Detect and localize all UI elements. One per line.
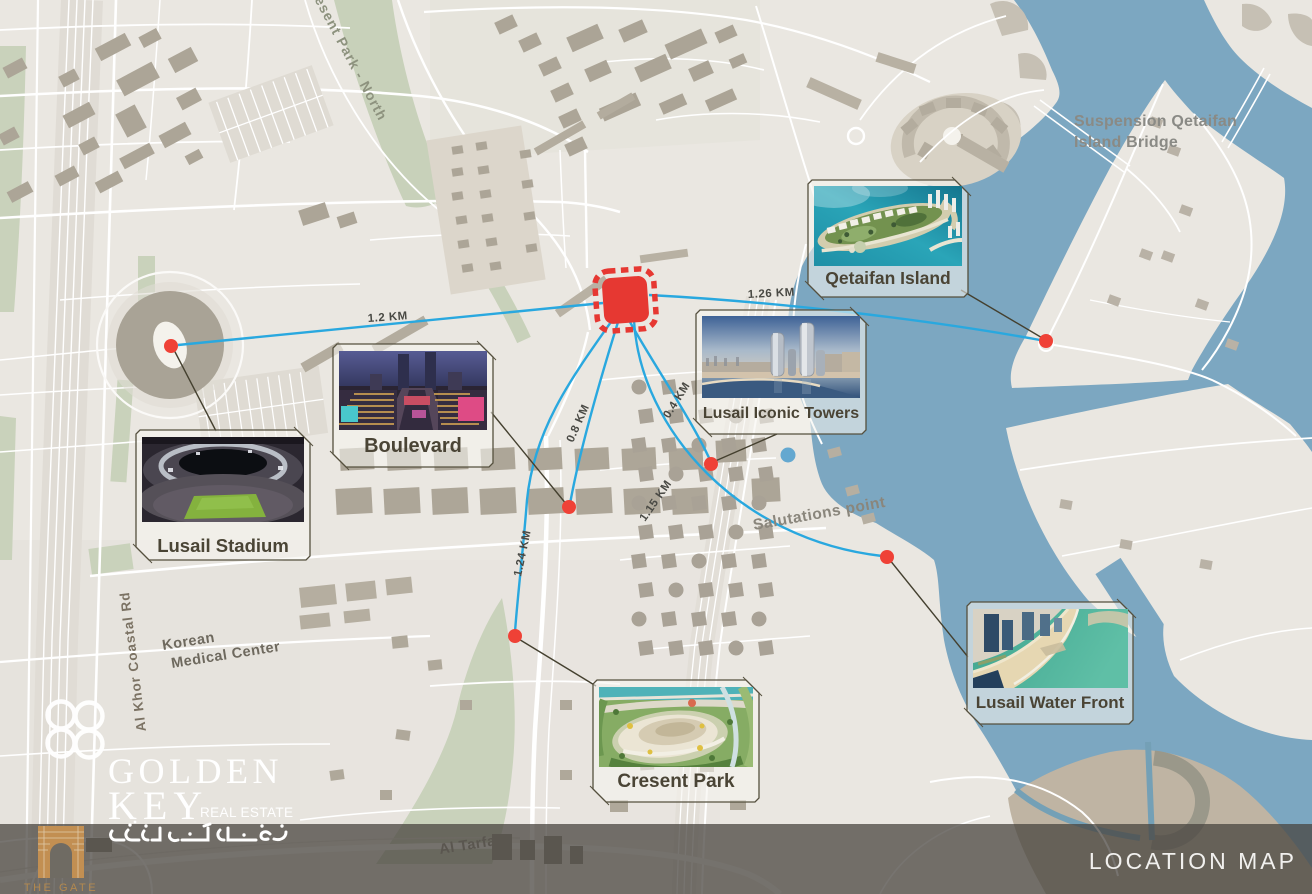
svg-text:1.26 KM: 1.26 KM xyxy=(748,287,796,301)
svg-text:Suspension Qetaifan: Suspension Qetaifan xyxy=(1074,113,1237,130)
svg-text:Island Bridge: Island Bridge xyxy=(1074,134,1178,151)
svg-text:LOCATION MAP: LOCATION MAP xyxy=(1089,848,1297,874)
svg-text:Lusail Iconic Towers: Lusail Iconic Towers xyxy=(703,405,859,422)
svg-text:REAL ESTATE: REAL ESTATE xyxy=(200,805,293,820)
svg-text:Lusail Stadium: Lusail Stadium xyxy=(157,535,289,556)
svg-text:Cresent Park: Cresent Park xyxy=(617,771,735,792)
svg-text:Boulevard: Boulevard xyxy=(364,435,462,457)
svg-text:Lusail Water Front: Lusail Water Front xyxy=(976,693,1125,712)
svg-text:KEY: KEY xyxy=(108,783,208,828)
svg-text:Qetaifan Island: Qetaifan Island xyxy=(825,268,950,288)
svg-text:THE GATE: THE GATE xyxy=(24,882,98,894)
